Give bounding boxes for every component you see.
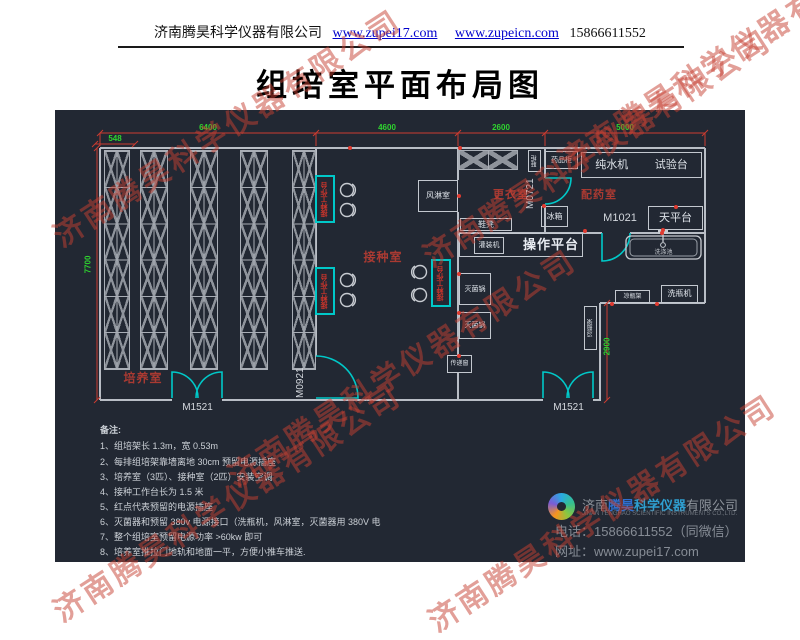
- shoe-cabinet-label: 鞋柜: [532, 155, 538, 167]
- door-label-m0921: M0921: [295, 360, 306, 406]
- door-m1521-left: [172, 372, 222, 398]
- outlet-dot: [583, 229, 587, 233]
- notes-title: 备注:: [100, 423, 121, 436]
- header-divider: [118, 46, 684, 48]
- note-item-5: 5、红点代表预留的电源插座: [100, 500, 213, 513]
- outlet-dot: [661, 228, 665, 232]
- inoculation-workbench-3: 接种工作台: [431, 259, 451, 307]
- medicine-cabinet: 药品柜: [545, 151, 578, 169]
- dim-2600: 2600: [471, 123, 531, 132]
- door-label-m0721: M0721: [525, 172, 536, 216]
- dim-5000: 5000: [595, 123, 655, 132]
- door-m0721: [545, 178, 571, 204]
- stools: [341, 184, 427, 307]
- culture-rack-4: [240, 150, 268, 370]
- bottle-washer: 洗瓶机: [661, 285, 698, 303]
- note-item-3: 3、培养室（3匹）、接种室（2匹）安装空调: [100, 470, 273, 483]
- outlet-dot: [674, 205, 678, 209]
- header-link-zupei17[interactable]: www.zupei17.com: [333, 26, 438, 41]
- outlet-dot: [610, 302, 614, 306]
- footer-phone: 电话：15866611552（同微信）: [555, 521, 738, 540]
- note-item-7: 7、整个组培室预留电源功率 >60kw 即可: [100, 530, 262, 543]
- air-shower-room: 风淋室: [418, 180, 458, 212]
- inoculation-workbench-2: 接种工作台: [315, 267, 335, 315]
- footer-site: 网址：www.zupei17.com: [555, 541, 699, 560]
- bottle-cooling-rack-label: 凉瓶架: [588, 319, 594, 337]
- water-machine-label: 纯水机: [595, 160, 628, 171]
- dim-7700: 7700: [84, 245, 93, 285]
- outlet-dot: [457, 354, 461, 358]
- outlet-dot: [457, 272, 461, 276]
- dim-2900: 2900: [603, 327, 612, 367]
- outlet-dot: [457, 194, 461, 198]
- culture-rack-5: [292, 150, 316, 370]
- bottle-cooling-rack-v: 凉瓶架: [584, 306, 597, 350]
- balance-table: 天平台: [648, 206, 703, 230]
- outlet-dot: [348, 146, 352, 150]
- page-header: 济南腾昊科学仪器有限公司 www.zupei17.com www.zupeicn…: [0, 22, 800, 42]
- header-company: 济南腾昊科学仪器有限公司: [154, 26, 322, 41]
- culture-rack-1: [104, 150, 130, 370]
- test-bench-label: 试验台: [655, 160, 688, 171]
- door-label-m1521-left: M1521: [170, 402, 225, 413]
- room-label-culture: 培养室: [113, 369, 173, 386]
- workbench-label: 接种工作台: [436, 266, 446, 301]
- dim-4600: 4600: [357, 123, 417, 132]
- note-item-8: 8、培养室推拉门地轨和地面一平，方便小推车推送.: [100, 545, 306, 558]
- company-logo-icon: [548, 493, 575, 520]
- culture-rack-2: [140, 150, 168, 370]
- locker-rack: [458, 150, 518, 170]
- door-m0921: [316, 356, 358, 398]
- operation-bench: 灌装机 操作平台: [459, 233, 583, 257]
- filling-machine: 灌装机: [474, 237, 504, 254]
- door-label-m1021: M1021: [600, 212, 640, 224]
- prep-bench: 纯水机 试验台: [581, 152, 702, 178]
- culture-rack-3: [190, 150, 218, 370]
- page-title: 组培室平面布局图: [0, 60, 800, 105]
- outlet-dot: [542, 204, 546, 208]
- note-item-1: 1、组培架长 1.3m，宽 0.53m: [100, 439, 218, 452]
- floorplan-canvas: 接种工作台 接种工作台 接种工作台 风淋室 鞋柜 药品柜 纯水机 试验台 冰箱 …: [55, 110, 745, 562]
- note-item-2: 2、每排组培架靠墙离地 30cm 预留电源插座: [100, 455, 276, 468]
- sterilizer-2: 灭菌锅: [459, 312, 491, 339]
- outlet-dot: [457, 311, 461, 315]
- dim-6400: 6400: [178, 123, 238, 132]
- outlet-dot: [655, 302, 659, 306]
- header-phone: 15866611552: [569, 26, 645, 41]
- inoculation-workbench-1: 接种工作台: [315, 175, 335, 223]
- door-m1521-right: [543, 372, 593, 398]
- door-label-m1521-right: M1521: [541, 402, 596, 413]
- workbench-label: 接种工作台: [320, 182, 330, 217]
- note-item-6: 6、灭菌器和预留 380v 电源接口（洗瓶机，风淋室，灭菌器用 380V 电: [100, 515, 381, 528]
- room-label-dispensing: 配药室: [571, 186, 627, 202]
- header-link-zupeicn[interactable]: www.zupeicn.com: [455, 26, 559, 41]
- operation-platform-label: 操作平台: [523, 238, 579, 251]
- shoe-bench: 鞋凳: [460, 218, 512, 231]
- sterilizer-1: 灭菌锅: [459, 273, 491, 305]
- fridge: 冰箱: [541, 206, 568, 227]
- room-label-inoculation: 接种室: [353, 248, 413, 265]
- shoe-cabinet: 鞋柜: [528, 150, 541, 172]
- workbench-label: 接种工作台: [320, 274, 330, 309]
- dim-548: 548: [95, 134, 135, 143]
- outlet-dot: [458, 146, 462, 150]
- note-item-4: 4、接种工作台长为 1.5 米: [100, 485, 204, 498]
- bottle-cooling-rack-h: 凉瓶架: [615, 290, 650, 303]
- footer-company-en: JINAN TENGHAO SCIENTIFIC INSTRUMENTS CO.…: [582, 511, 737, 517]
- sink-label: 洗涤池: [645, 247, 682, 256]
